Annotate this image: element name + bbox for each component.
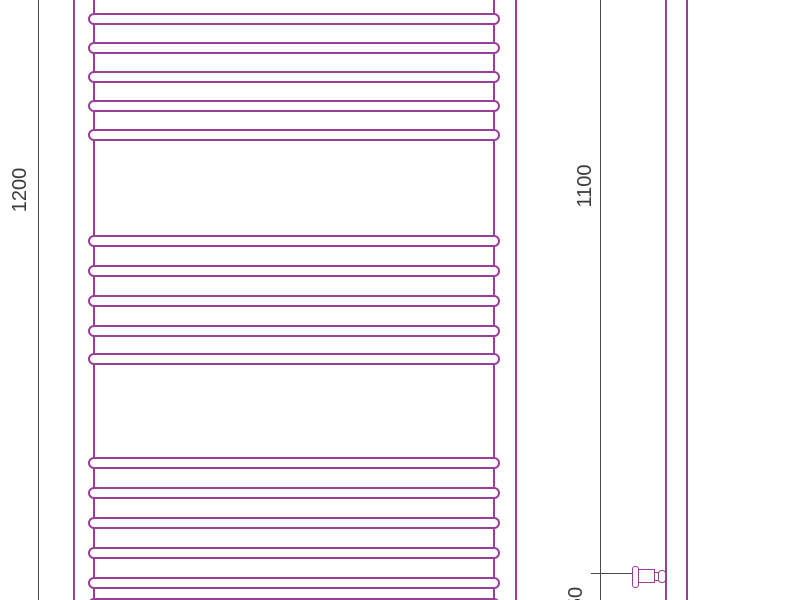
rung (88, 353, 500, 365)
rung (88, 457, 500, 469)
rung (88, 42, 500, 54)
rung (88, 129, 500, 141)
dimension-label-overall-height: 1200 (10, 168, 30, 213)
technical-drawing-canvas: 1200 1100 50 (0, 0, 800, 600)
rung (88, 235, 500, 247)
dimension-line-overall-height (38, 0, 39, 600)
valve-body (638, 569, 655, 583)
rung (88, 295, 500, 307)
dimension-label-axis-height: 1100 (575, 164, 595, 207)
rung (88, 547, 500, 559)
dimension-tick-valve-axis (591, 573, 634, 574)
rung (88, 577, 500, 589)
dimension-line-axis-height (600, 0, 601, 600)
side-view-tube (665, 0, 688, 600)
rung (88, 517, 500, 529)
rung (88, 13, 500, 25)
dimension-label-bottom-offset: 50 (566, 587, 586, 600)
rung (88, 265, 500, 277)
rung (88, 71, 500, 83)
rung (88, 325, 500, 337)
valve-knob (658, 570, 666, 583)
rung (88, 487, 500, 499)
rung (88, 100, 500, 112)
